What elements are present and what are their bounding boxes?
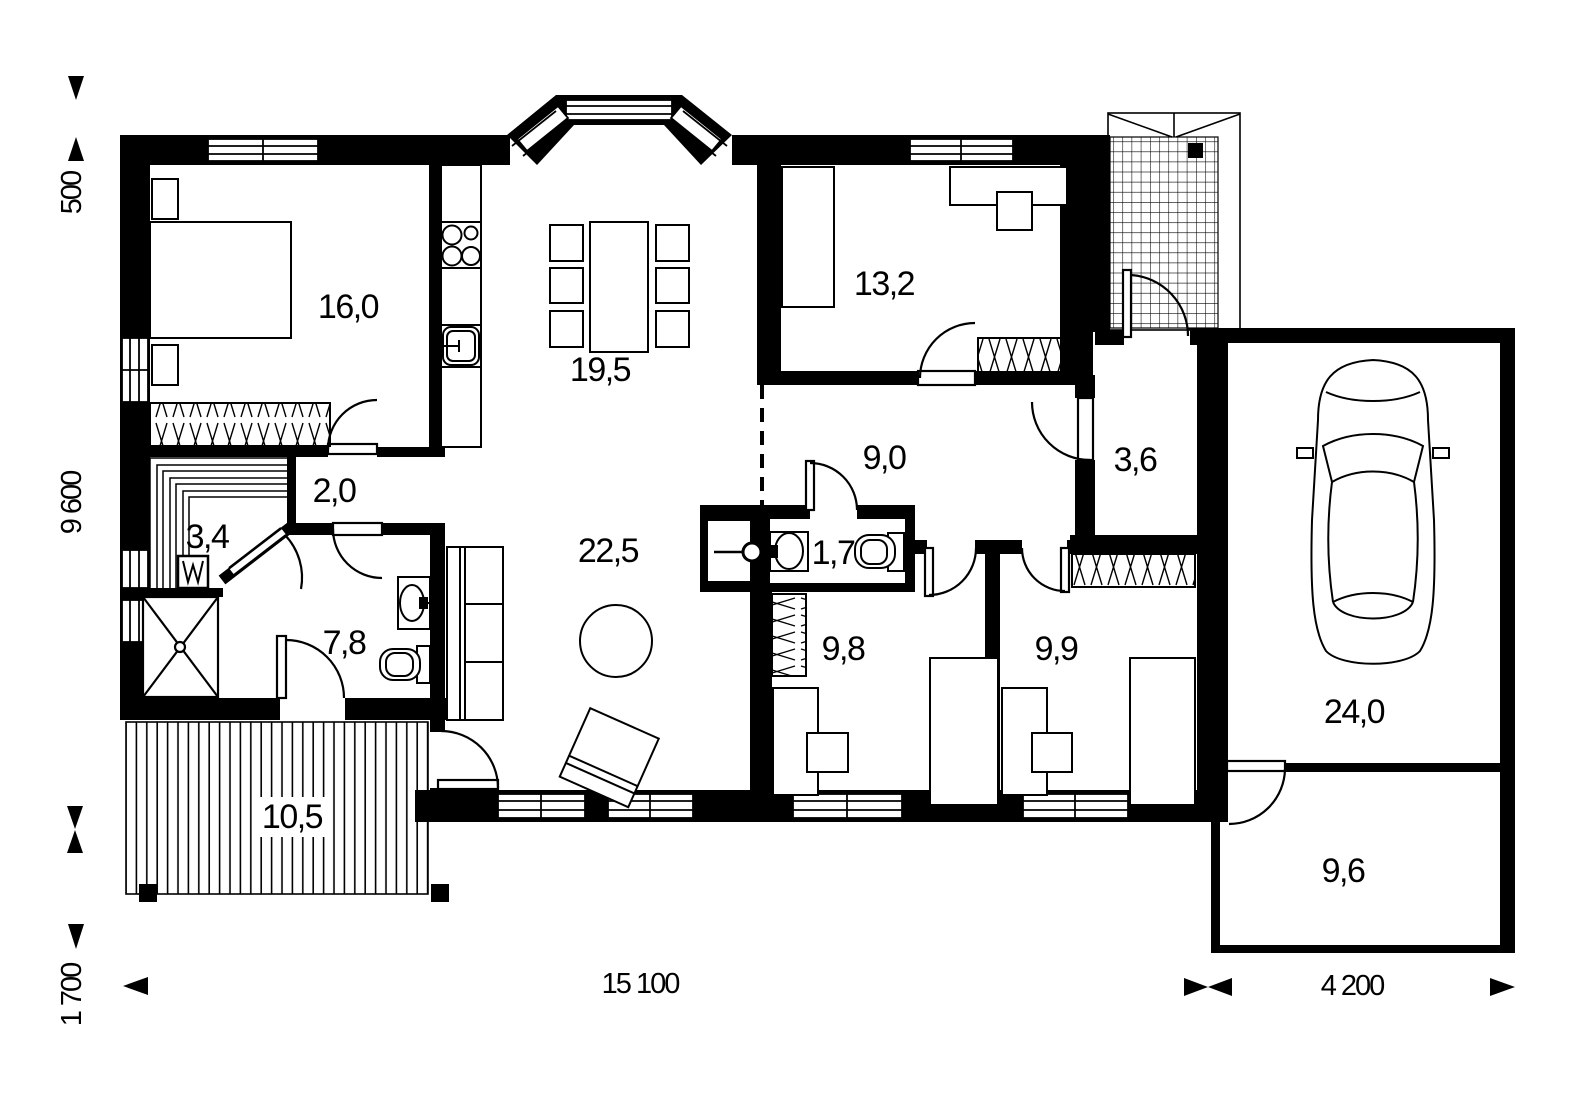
wall-living-bedroom3 xyxy=(750,585,772,822)
chair-bedroom2 xyxy=(997,192,1032,230)
room-label-terrace: 10,5 xyxy=(262,798,323,836)
room-label-bedroom2: 13,2 xyxy=(854,265,915,303)
wardrobe-bedroom4 xyxy=(1072,554,1195,587)
wardrobe-bedroom3 xyxy=(772,594,806,676)
wall-sauna-bottom xyxy=(120,588,223,597)
kitchen-counter xyxy=(441,165,481,447)
wall-dining-bedroom2 xyxy=(757,165,781,371)
chair-bedroom4 xyxy=(1032,733,1072,772)
terrace-post-right xyxy=(431,884,449,902)
window-sauna-left xyxy=(122,550,148,588)
room-label-dining: 19,5 xyxy=(570,351,631,389)
room-label-bedroom-master: 16,0 xyxy=(318,288,379,326)
room-label-garage: 24,0 xyxy=(1324,693,1385,731)
wall-garage-top xyxy=(1218,328,1515,343)
bed-bedroom3 xyxy=(930,658,998,805)
room-label-hallway: 9,0 xyxy=(863,439,906,477)
room-label-vestibule: 3,6 xyxy=(1114,441,1157,479)
window-living-bottom-1 xyxy=(498,794,585,818)
wardrobe-bedroom2 xyxy=(978,338,1086,373)
room-label-sauna: 3,4 xyxy=(186,518,229,556)
coffee-table xyxy=(580,605,652,677)
window-bedroom4-bottom xyxy=(1023,794,1128,818)
wall-storage-left xyxy=(1211,763,1220,953)
exterior-wall-right xyxy=(1197,328,1228,822)
window-bay-top xyxy=(566,100,672,120)
sofa xyxy=(447,547,503,720)
window-bedroom-left xyxy=(122,338,148,402)
dim-label-terrace-depth: 1 700 xyxy=(56,963,88,1026)
dim-label-house-depth: 9 600 xyxy=(56,471,88,534)
bed-bedroom2 xyxy=(782,167,834,307)
wall-porch-left xyxy=(1090,135,1110,332)
porch-column xyxy=(1188,143,1203,158)
washbasin-bathroom-icon xyxy=(398,577,432,629)
window-bedroom-top xyxy=(208,139,318,161)
window-bedroom2-top xyxy=(910,139,1013,161)
room-label-hall-small: 2,0 xyxy=(313,472,356,510)
room-label-bedroom3: 9,8 xyxy=(822,630,865,668)
floor-plan-canvas: 16,0 19,5 13,2 2,0 3,4 7,8 22,5 9,0 1,7 … xyxy=(0,0,1584,1103)
chair-bedroom3 xyxy=(807,733,848,772)
toilet-wc-icon xyxy=(855,533,904,571)
wall-garage-right xyxy=(1500,328,1515,953)
room-label-living: 22,5 xyxy=(578,532,639,570)
bed-bedroom4 xyxy=(1130,658,1195,805)
floor-plan: 16,0 19,5 13,2 2,0 3,4 7,8 22,5 9,0 1,7 … xyxy=(0,0,1584,1103)
dim-label-garage-width: 4 200 xyxy=(1321,970,1384,1002)
room-label-wc: 1,7 xyxy=(812,534,855,572)
shower-icon xyxy=(143,597,218,697)
room-label-bathroom: 7,8 xyxy=(323,624,366,662)
car-icon xyxy=(1297,360,1449,664)
wall-bedroom-kitchen xyxy=(429,160,441,457)
wardrobe-master xyxy=(150,403,330,446)
room-label-storage: 9,6 xyxy=(1322,852,1365,890)
wall-storage-bottom xyxy=(1211,945,1515,953)
dining-table xyxy=(550,222,689,352)
room-label-bedroom4: 9,9 xyxy=(1035,630,1078,668)
window-bedroom3-bottom xyxy=(793,794,902,818)
wall-sauna-right xyxy=(287,447,296,528)
sauna-stove-icon xyxy=(178,556,208,588)
dim-label-house-width: 15 100 xyxy=(602,968,680,1000)
toilet-bathroom-icon xyxy=(380,646,430,683)
dim-label-overhang: 500 xyxy=(56,171,88,214)
